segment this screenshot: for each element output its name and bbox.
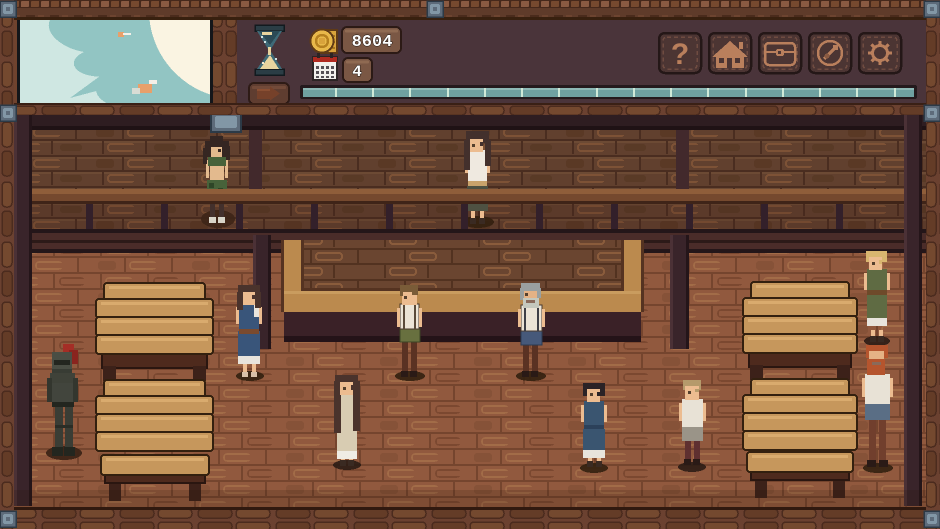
svg-text:?: ? (671, 38, 689, 71)
svg-text:8604: 8604 (352, 33, 393, 52)
svg-text:4: 4 (352, 63, 362, 81)
